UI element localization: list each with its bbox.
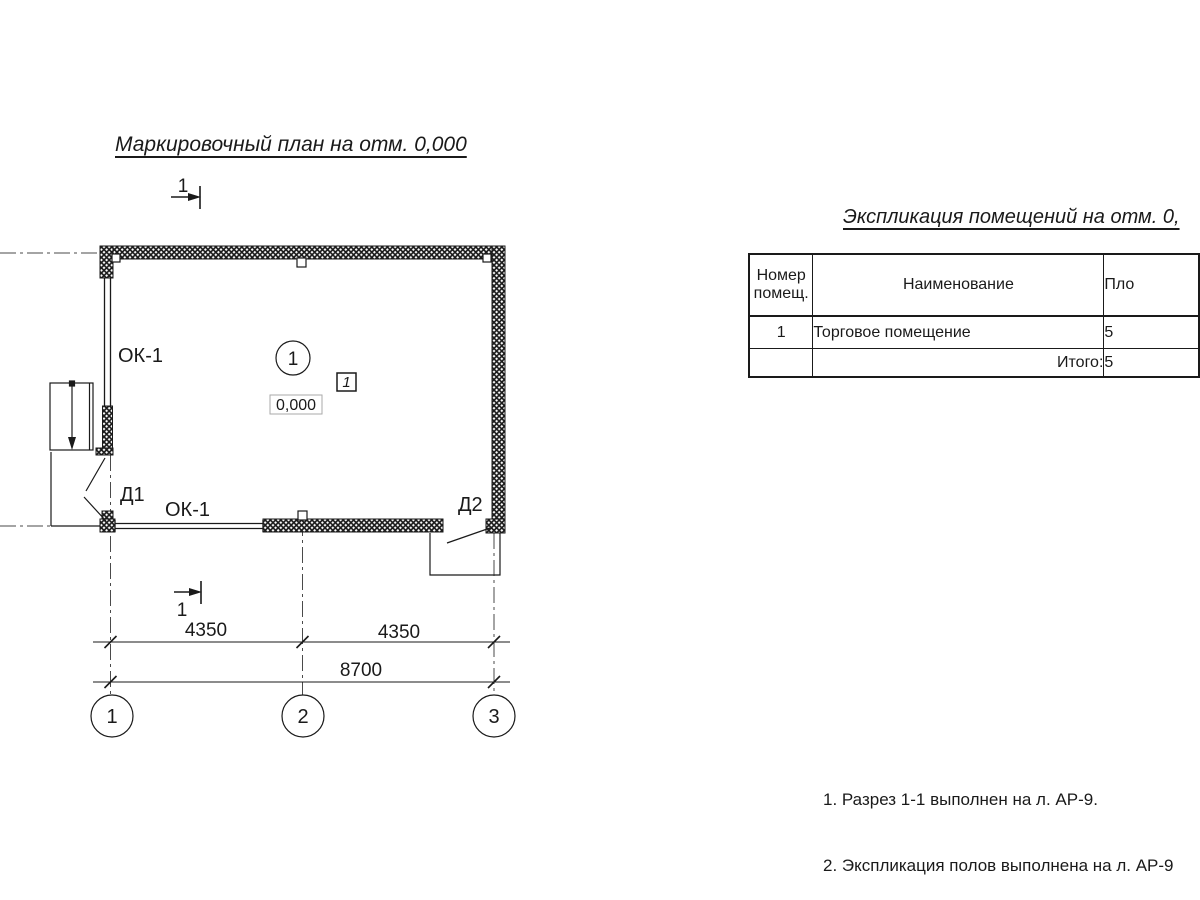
wall-bottom-right-pier (486, 519, 505, 533)
table-header-row: Номер помещ. Наименование Пло (749, 254, 1199, 316)
dim-bay-right: 4350 (378, 622, 420, 643)
table-total-row: Итого: 5 (749, 349, 1199, 378)
wall-left-top-pier (100, 246, 113, 278)
cell-room-name: Торговое помещение (813, 316, 1104, 349)
cell-room-number: 1 (749, 316, 813, 349)
total-label: Итого: (813, 349, 1104, 378)
window-tag-left: ОК-1 (118, 345, 163, 367)
wall-joint-marks (112, 254, 491, 520)
header-area: Пло (1104, 254, 1199, 316)
section-label-top: 1 (178, 176, 189, 197)
walls (96, 246, 505, 533)
door-d2-leaf (447, 528, 490, 543)
explication-title: Экспликация помещений на отм. 0, (843, 206, 1180, 229)
wall-top (100, 246, 505, 259)
stair-arrow-start-dot (70, 381, 75, 386)
cell-room-area: 5 (1104, 316, 1199, 349)
joint-mark-top-right (483, 254, 491, 262)
explication-table: Номер помещ. Наименование Пло 1 Торговое… (748, 253, 1200, 378)
stair-arrow-head (68, 437, 76, 450)
dim-bay-left: 4350 (185, 620, 227, 641)
elevation-mark: 0,000 (270, 395, 322, 414)
dimension-lines (93, 642, 510, 682)
wall-bottom-mid (263, 519, 443, 532)
section-arrow-top (188, 193, 201, 201)
joint-tab-top-mid (297, 258, 306, 267)
table-row: 1 Торговое помещение 5 (749, 316, 1199, 349)
wall-bottom-left-pier (100, 519, 115, 532)
floor-type-number: 1 (342, 374, 350, 391)
note-line-1: 1. Разрез 1-1 выполнен на л. АР-9. (823, 789, 1174, 811)
door-tag-d1: Д1 (120, 484, 145, 506)
header-room-number: Номер помещ. (749, 254, 813, 316)
porch-left (50, 381, 100, 526)
window-tag-bottom: ОК-1 (165, 499, 210, 521)
porch-right-outline (430, 533, 500, 575)
door-tag-d2: Д2 (458, 494, 483, 516)
sheet: Маркировочный план на отм. 0,000 (0, 0, 1200, 900)
elevation-value: 0,000 (276, 397, 316, 414)
dim-total: 8700 (340, 660, 382, 681)
axis-number-3: 3 (488, 706, 499, 728)
notes-block: 1. Разрез 1-1 выполнен на л. АР-9. 2. Эк… (823, 745, 1174, 900)
wall-right (492, 246, 505, 533)
room-number: 1 (288, 349, 299, 370)
joint-mark-top-left (112, 254, 120, 262)
header-name: Наименование (813, 254, 1104, 316)
room-number-bubble: 1 (276, 341, 310, 375)
floor-type-marker: 1 (337, 373, 356, 391)
wall-left-mid-pier (103, 406, 113, 451)
cell-total-empty (749, 349, 813, 378)
window-sill-tab (96, 448, 113, 455)
note-line-2: 2. Экспликация полов выполнена на л. АР-… (823, 855, 1174, 877)
joint-tab-bottom-mid (298, 511, 307, 520)
axis-number-1: 1 (106, 706, 117, 728)
axis-number-2: 2 (297, 706, 308, 728)
section-marker-bottom: 1 (174, 581, 202, 621)
section-arrow-bottom (189, 588, 202, 596)
section-marker-top: 1 (171, 176, 201, 209)
section-label-bottom: 1 (177, 600, 188, 621)
total-area: 5 (1104, 349, 1199, 378)
